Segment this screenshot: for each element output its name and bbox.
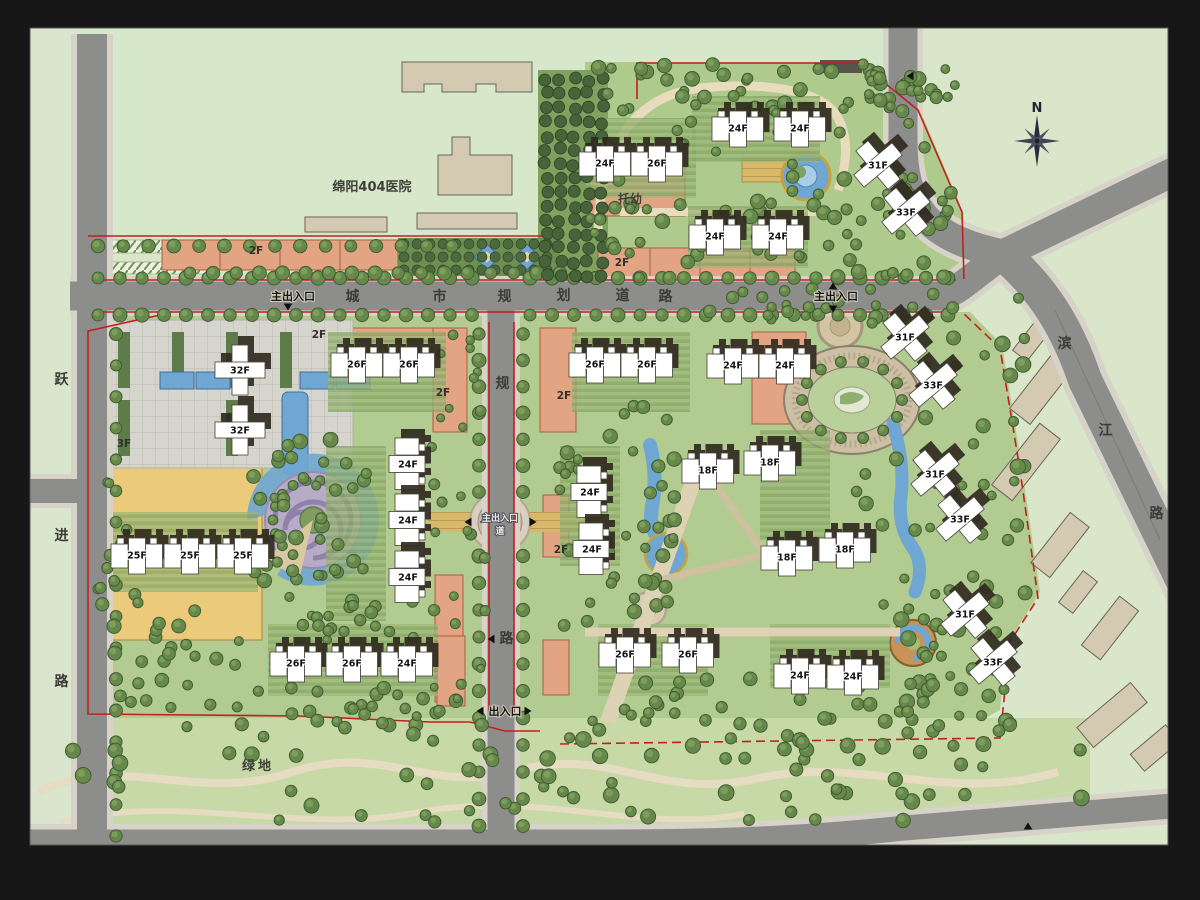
tree-icon	[276, 816, 281, 821]
tree-icon	[357, 310, 363, 316]
site-plan-map: 24F26F24F24F24F24F31F33F32F32F25F25F25F2…	[0, 0, 1200, 900]
building-26F: 26F	[326, 637, 384, 682]
building-block	[611, 628, 618, 634]
roundabout-entrance-label: 主出入口	[482, 512, 518, 524]
tree-icon	[610, 573, 615, 578]
building-block	[581, 338, 588, 344]
tree-icon	[659, 60, 666, 67]
tree-icon	[1076, 745, 1082, 751]
building-block	[713, 348, 720, 354]
tree-icon	[669, 454, 676, 461]
podium-floor-label: 2F	[615, 257, 629, 269]
tree-icon	[730, 92, 735, 97]
parking-lot	[95, 320, 353, 468]
tree-icon	[613, 310, 620, 317]
building-block	[111, 544, 128, 568]
building-25F: 25F	[164, 529, 222, 574]
tree-icon	[596, 202, 608, 214]
building-block	[150, 538, 157, 544]
building-label: 32F	[230, 426, 250, 437]
tree-icon	[795, 84, 802, 91]
tree-icon	[658, 550, 665, 557]
tree-icon	[475, 461, 481, 467]
tree-icon	[430, 480, 435, 485]
tree-icon	[232, 268, 238, 274]
tree-icon	[288, 566, 294, 572]
tree-icon	[909, 174, 914, 179]
tree-icon	[271, 241, 277, 247]
tree-icon	[439, 268, 446, 275]
building-block	[746, 348, 753, 354]
building-block	[771, 339, 778, 345]
tree-icon	[843, 205, 848, 210]
tree-icon	[700, 92, 706, 98]
tree-icon	[349, 705, 354, 710]
tree-icon	[334, 540, 340, 546]
tree-icon	[959, 482, 963, 486]
tree-icon	[919, 698, 924, 703]
building-label: 25F	[127, 551, 147, 562]
building-24F: 24F	[752, 210, 810, 255]
tree-icon	[182, 641, 187, 646]
tree-icon	[451, 593, 455, 597]
road-name-char: 划	[557, 287, 572, 304]
tree-icon	[947, 673, 951, 677]
roundabout-road-char: 道	[495, 525, 504, 537]
compass-n-label: N	[1032, 101, 1043, 116]
building-block	[418, 353, 435, 377]
tree-icon	[486, 269, 492, 275]
tree-icon	[313, 273, 320, 280]
tree-icon	[645, 709, 650, 714]
tree-icon	[334, 718, 339, 723]
tree-icon	[94, 274, 100, 280]
tree-icon	[1011, 478, 1015, 482]
building-block	[833, 659, 840, 665]
tree-icon	[142, 696, 147, 701]
tree-icon	[482, 607, 487, 612]
tree-icon	[898, 815, 905, 822]
road-name-char: 道	[616, 287, 631, 304]
tree-icon	[341, 628, 346, 633]
tree-icon	[869, 319, 874, 324]
tree-icon	[539, 74, 551, 86]
tree-icon	[814, 310, 820, 316]
building-block	[798, 348, 805, 354]
building-block	[605, 637, 612, 643]
tree-icon	[342, 459, 347, 464]
building-block	[786, 649, 793, 655]
building-24F: 24F	[707, 339, 765, 384]
tree-icon	[644, 206, 648, 210]
tree-icon	[274, 452, 279, 457]
road-name-char: 江	[1099, 422, 1114, 439]
tree-icon	[569, 87, 581, 99]
tree-icon	[526, 311, 532, 317]
building-block	[809, 664, 826, 688]
tree-icon	[1010, 418, 1015, 423]
tree-icon	[423, 310, 429, 316]
tree-icon	[639, 522, 645, 528]
building-block	[614, 338, 621, 344]
tree-icon	[562, 447, 569, 454]
tree-icon	[468, 310, 474, 316]
tree-icon	[945, 93, 949, 97]
building-18F: 18F	[682, 444, 740, 489]
tree-icon	[819, 207, 826, 214]
building-block	[666, 152, 683, 176]
tree-icon	[320, 458, 325, 463]
tree-icon	[181, 310, 187, 316]
building-block	[326, 652, 343, 676]
tree-icon	[921, 273, 927, 279]
tree-icon	[903, 633, 910, 640]
tree-icon	[1015, 295, 1020, 300]
building-label: 26F	[647, 159, 667, 170]
tree-icon	[349, 484, 354, 489]
tree-icon	[401, 310, 407, 316]
tree-icon	[961, 790, 967, 796]
tree-icon	[580, 201, 592, 213]
building-block	[579, 523, 603, 540]
tree-icon	[927, 85, 933, 91]
building-block	[591, 137, 598, 143]
tree-icon	[315, 572, 320, 577]
tree-icon	[956, 712, 960, 716]
tree-icon	[305, 707, 311, 713]
tree-icon	[1021, 335, 1026, 340]
tree-icon	[559, 788, 564, 793]
building-block	[607, 463, 613, 470]
tree-icon	[702, 675, 708, 681]
tree-icon	[623, 532, 627, 536]
building-block	[575, 347, 582, 353]
tree-icon	[567, 241, 579, 253]
building-block	[694, 444, 701, 450]
tree-icon	[435, 707, 440, 712]
tree-icon	[567, 258, 579, 270]
tree-icon	[1076, 792, 1083, 799]
tree-icon	[957, 760, 963, 766]
tree-icon	[503, 252, 513, 262]
tree-icon	[837, 358, 842, 363]
tree-icon	[112, 800, 117, 805]
tree-icon	[279, 501, 285, 507]
tree-icon	[287, 453, 293, 459]
building-label: 24F	[398, 460, 418, 471]
building-block	[419, 477, 425, 484]
tree-icon	[131, 590, 137, 596]
building-label: 24F	[398, 573, 418, 584]
tree-icon	[896, 614, 903, 621]
tree-icon	[596, 215, 601, 220]
tree-icon	[247, 310, 253, 316]
tree-icon	[753, 196, 760, 203]
building-block	[813, 111, 820, 117]
building-24F: 24F	[573, 514, 615, 575]
building-block	[419, 500, 425, 507]
tree-icon	[183, 723, 188, 728]
tree-icon	[112, 518, 117, 523]
tree-icon	[865, 699, 871, 705]
building-label: 26F	[637, 360, 657, 371]
building-block	[425, 491, 431, 498]
tree-icon	[519, 356, 525, 362]
tree-icon	[325, 627, 330, 632]
tree-icon	[422, 241, 428, 247]
tree-icon	[568, 145, 580, 157]
tree-icon	[358, 701, 363, 706]
tree-icon	[287, 787, 292, 792]
building-24F: 24F	[579, 137, 637, 182]
tree-icon	[570, 202, 582, 214]
tree-icon	[286, 594, 290, 598]
tree-icon	[705, 307, 711, 313]
tree-icon	[713, 148, 717, 152]
tree-icon	[458, 681, 463, 686]
building-label: 26F	[347, 360, 367, 371]
tree-icon	[287, 684, 292, 689]
building-block	[825, 532, 832, 538]
tree-icon	[587, 215, 591, 219]
building-label: 24F	[728, 124, 748, 135]
building-label: 32F	[230, 366, 250, 377]
tree-icon	[291, 310, 297, 316]
building-block	[668, 637, 675, 643]
tree-icon	[98, 599, 104, 605]
building-block	[854, 538, 871, 562]
tree-icon	[758, 293, 763, 298]
tree-icon	[639, 402, 645, 408]
building-block	[759, 354, 776, 378]
tree-icon	[915, 87, 919, 91]
building-block	[774, 664, 791, 688]
tree-icon	[595, 118, 607, 130]
building-block	[601, 472, 607, 479]
building-block	[170, 538, 177, 544]
tree-icon	[186, 269, 192, 275]
tree-icon	[952, 82, 956, 86]
tree-icon	[169, 241, 175, 247]
building-block	[381, 652, 398, 676]
tree-icon	[477, 720, 483, 726]
tree-icon	[488, 755, 494, 761]
tree-icon	[474, 686, 480, 692]
tree-icon	[269, 310, 275, 316]
podium-floor-label: 2F	[249, 245, 263, 257]
building-block	[420, 646, 427, 652]
hedge-block	[326, 446, 386, 621]
parking-green-strip	[118, 332, 130, 388]
building-block	[366, 353, 383, 377]
tree-icon	[167, 704, 172, 709]
building-label: 18F	[698, 466, 718, 477]
tree-icon	[313, 310, 320, 317]
tree-icon	[269, 273, 275, 279]
tree-icon	[827, 66, 834, 73]
building-26F: 26F	[662, 628, 720, 673]
tree-icon	[583, 617, 589, 623]
tree-icon	[621, 706, 626, 711]
building-block	[831, 523, 838, 529]
building-block	[579, 152, 596, 176]
tree-icon	[331, 485, 337, 491]
building-block	[752, 225, 769, 249]
building-block	[387, 646, 394, 652]
tree-icon	[845, 99, 850, 104]
tree-icon	[580, 255, 592, 267]
building-18F: 18F	[819, 523, 877, 568]
tree-icon	[898, 396, 903, 401]
tree-icon	[510, 269, 516, 275]
tree-icon	[474, 821, 480, 827]
tree-icon	[556, 255, 568, 267]
building-block	[146, 544, 163, 568]
tree-icon	[859, 434, 864, 439]
tree-icon	[112, 831, 118, 837]
tree-icon	[627, 808, 632, 813]
tree-icon	[584, 188, 596, 200]
tree-icon	[325, 612, 329, 616]
building-label: 31F	[895, 333, 915, 344]
tree-icon	[583, 76, 595, 88]
tree-icon	[803, 379, 808, 384]
building-label: 24F	[582, 545, 602, 556]
tree-icon	[430, 817, 436, 823]
tree-icon	[518, 686, 524, 692]
tree-icon	[678, 91, 684, 97]
tree-icon	[939, 197, 944, 202]
tree-icon	[984, 691, 990, 697]
tree-icon	[859, 358, 864, 363]
tree-icon	[111, 674, 117, 680]
building-block	[117, 538, 124, 544]
building-18F: 18F	[744, 436, 802, 481]
tree-icon	[538, 157, 550, 169]
building-block	[701, 210, 708, 216]
building-block	[689, 225, 706, 249]
tree-icon	[671, 693, 676, 698]
road-name-char: 路	[55, 673, 70, 690]
tree-icon	[907, 680, 912, 685]
tree-icon	[272, 503, 277, 508]
tree-icon	[368, 702, 373, 707]
tree-icon	[604, 90, 609, 95]
podium-floor-label: 2F	[554, 544, 568, 556]
tree-icon	[688, 740, 695, 747]
tree-icon	[830, 212, 837, 219]
tree-icon	[862, 470, 867, 475]
tree-icon	[1005, 370, 1012, 377]
tree-icon	[474, 355, 481, 362]
tree-icon	[796, 252, 800, 256]
building-block	[419, 533, 425, 540]
tree-icon	[995, 726, 1000, 731]
building-block	[276, 646, 283, 652]
tree-icon	[745, 816, 750, 821]
building-block	[758, 219, 765, 225]
building-label: 18F	[835, 545, 855, 556]
tree-icon	[652, 600, 658, 606]
building-block	[422, 347, 429, 353]
building-block	[644, 628, 651, 634]
building-block	[643, 137, 650, 143]
building-26F: 26F	[383, 338, 441, 383]
tree-icon	[583, 116, 595, 128]
tree-icon	[597, 257, 609, 269]
building-block	[383, 353, 400, 377]
tree-icon	[637, 64, 643, 70]
tree-icon	[412, 252, 422, 262]
tree-icon	[518, 487, 524, 493]
tree-icon	[928, 680, 934, 686]
tree-icon	[438, 415, 442, 419]
building-block	[666, 338, 673, 344]
tree-icon	[670, 492, 676, 498]
building-label: 18F	[777, 553, 797, 564]
tree-icon	[904, 728, 910, 734]
building-block	[701, 637, 708, 643]
building-block	[601, 505, 607, 512]
tree-icon	[306, 800, 313, 807]
building-block	[819, 102, 826, 108]
tree-icon	[595, 187, 607, 199]
tree-icon	[825, 242, 830, 247]
tree-icon	[291, 532, 298, 539]
tree-icon	[789, 161, 794, 166]
building-block	[425, 581, 431, 588]
tree-icon	[115, 310, 122, 317]
tree-icon	[112, 392, 118, 398]
building-block	[624, 137, 631, 143]
tree-icon	[540, 102, 552, 114]
frame-right	[1168, 0, 1200, 900]
hospital-label: 绵阳404医院	[332, 179, 411, 195]
building-block	[800, 540, 807, 546]
tree-icon	[670, 535, 674, 539]
building-label: 24F	[790, 671, 810, 682]
building-block	[603, 562, 609, 569]
tree-icon	[119, 241, 125, 247]
building-block	[203, 538, 210, 544]
tree-icon	[858, 217, 862, 221]
tree-icon	[555, 172, 567, 184]
tree-icon	[1005, 720, 1011, 726]
building-label: 18F	[760, 458, 780, 469]
tree-icon	[464, 239, 474, 249]
tree-icon	[595, 750, 602, 757]
building-block	[674, 628, 681, 634]
tree-icon	[475, 435, 481, 441]
building-block	[676, 137, 683, 143]
tree-icon	[542, 86, 554, 98]
tree-icon	[296, 241, 302, 247]
building-24F: 24F	[571, 457, 613, 518]
tree-icon	[663, 597, 669, 603]
tree-icon	[636, 311, 642, 317]
tree-icon	[626, 250, 630, 254]
tree-icon	[349, 602, 354, 607]
tree-icon	[324, 637, 328, 641]
tree-icon	[867, 286, 872, 291]
tree-icon	[853, 488, 858, 493]
tree-icon	[552, 228, 564, 240]
tree-icon	[475, 740, 481, 746]
tree-icon	[834, 311, 840, 317]
tree-icon	[736, 719, 742, 725]
tree-icon	[629, 606, 636, 613]
tree-icon	[157, 675, 163, 681]
